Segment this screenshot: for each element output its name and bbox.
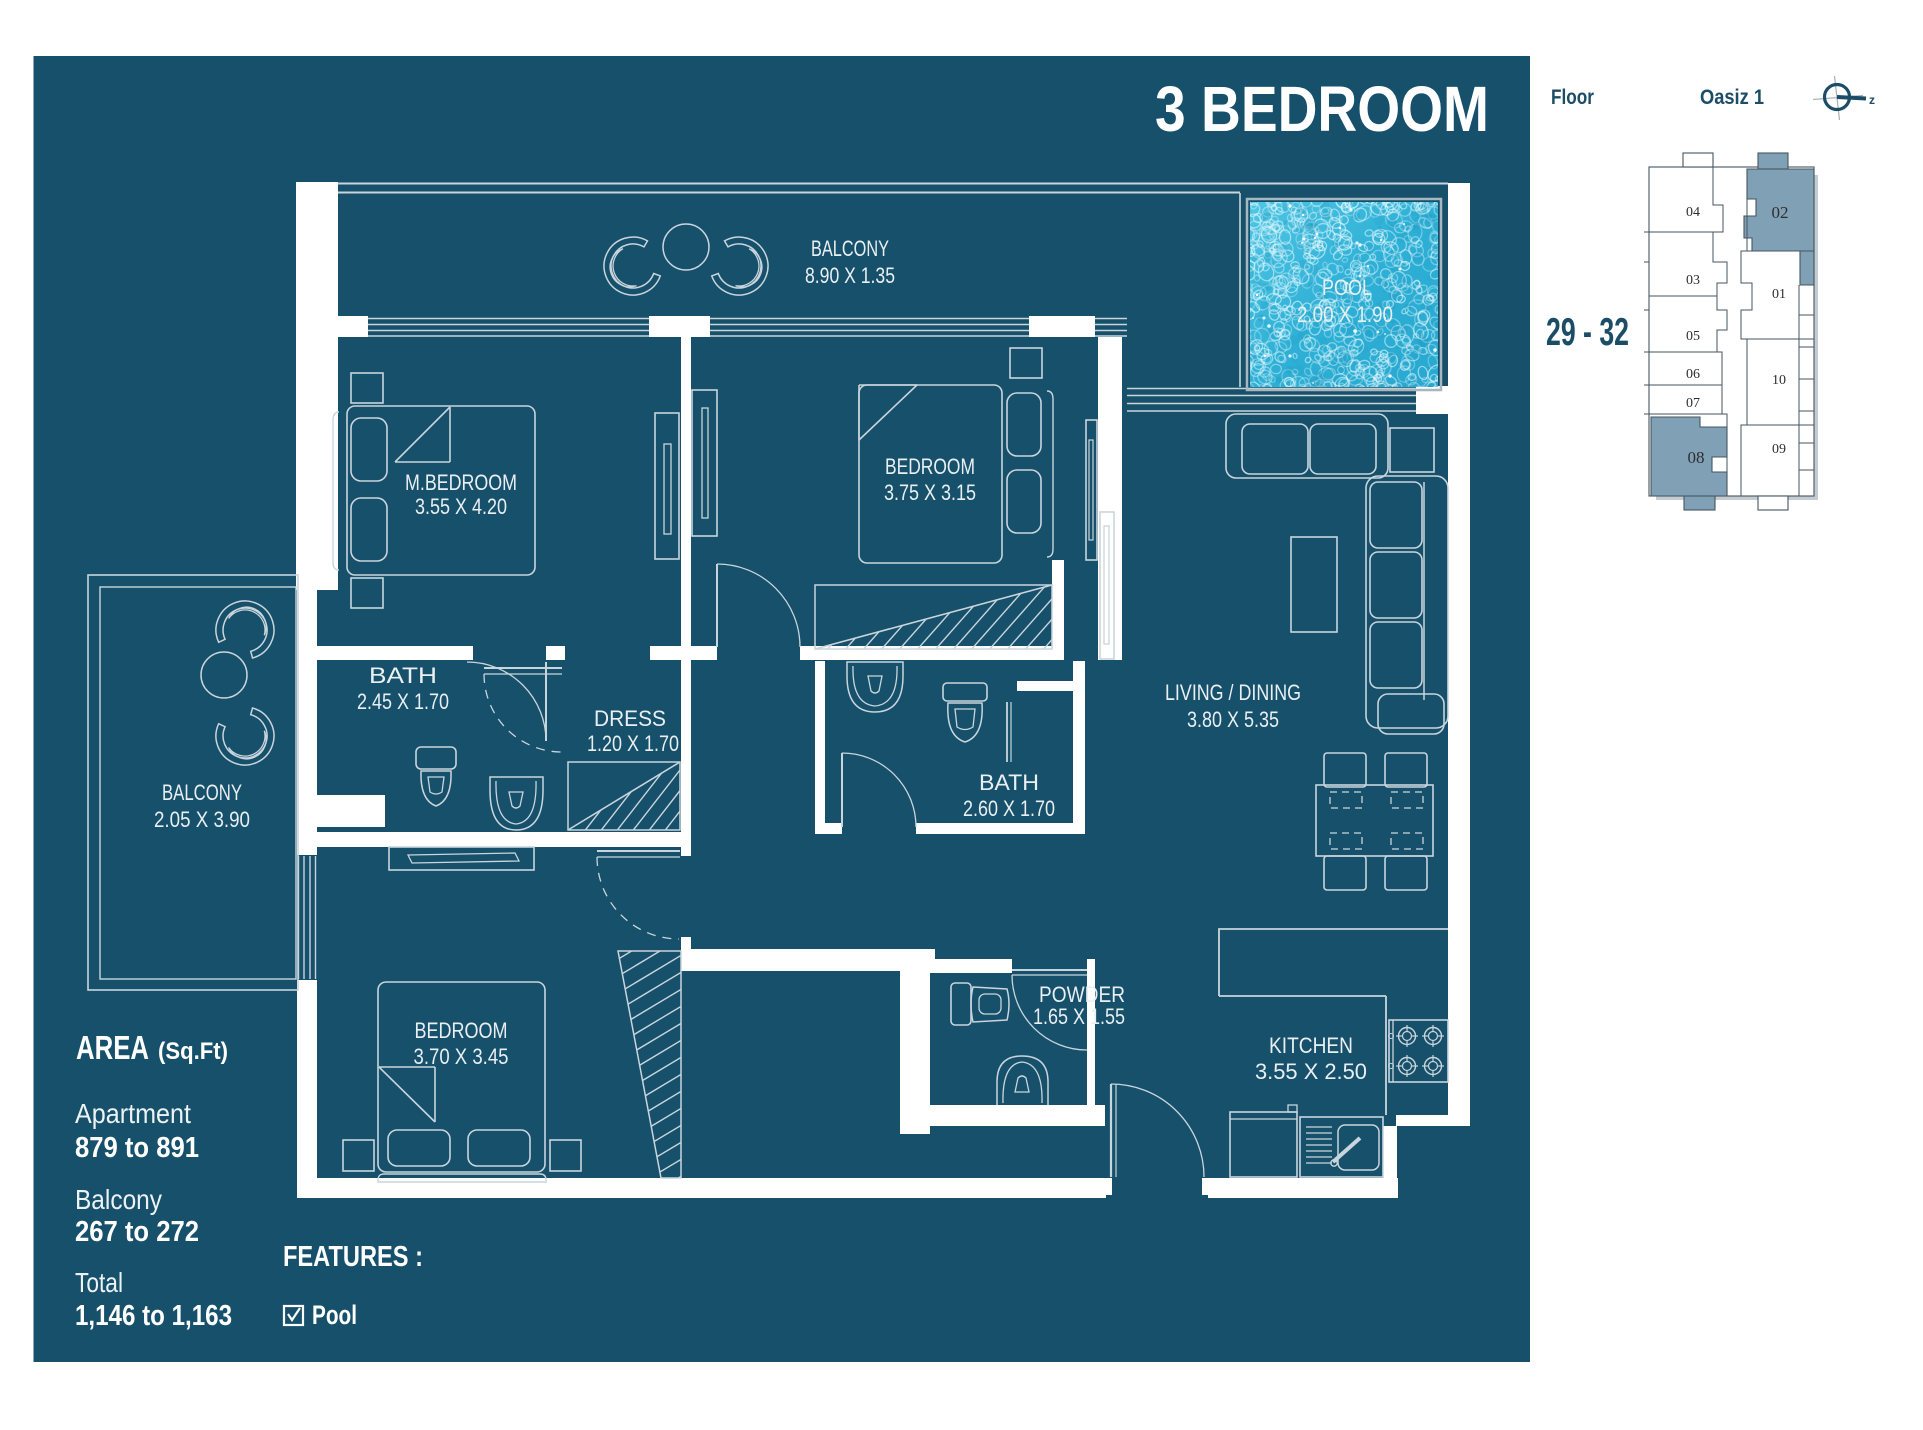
- svg-text:06: 06: [1686, 367, 1700, 382]
- svg-text:3.55 X 2.50: 3.55 X 2.50: [1255, 1059, 1367, 1084]
- svg-text:BEDROOM: BEDROOM: [885, 454, 975, 479]
- svg-text:1.65 X 1.55: 1.65 X 1.55: [1033, 1004, 1125, 1029]
- svg-text:08: 08: [1688, 448, 1705, 467]
- svg-text:Balcony: Balcony: [75, 1184, 162, 1215]
- svg-text:2.45 X 1.70: 2.45 X 1.70: [357, 689, 449, 714]
- svg-text:05: 05: [1686, 329, 1700, 344]
- svg-text:3 BEDROOM: 3 BEDROOM: [1155, 73, 1489, 145]
- svg-text:Total: Total: [75, 1267, 123, 1298]
- svg-text:03: 03: [1686, 273, 1700, 288]
- svg-text:267 to 272: 267 to 272: [75, 1216, 199, 1248]
- svg-text:BATH: BATH: [369, 663, 437, 688]
- svg-text:879 to 891: 879 to 891: [75, 1132, 199, 1164]
- svg-text:3.70 X 3.45: 3.70 X 3.45: [414, 1044, 509, 1069]
- svg-text:2.05 X 3.90: 2.05 X 3.90: [154, 807, 250, 832]
- svg-text:3.55 X 4.20: 3.55 X 4.20: [415, 494, 507, 519]
- svg-text:AREA: AREA: [76, 1029, 149, 1066]
- svg-text:2.00 X 1.90: 2.00 X 1.90: [1297, 302, 1393, 327]
- svg-text:KITCHEN: KITCHEN: [1269, 1033, 1353, 1058]
- svg-text:Pool: Pool: [312, 1300, 357, 1330]
- svg-text:LIVING / DINING: LIVING / DINING: [1165, 680, 1301, 705]
- svg-text:1.20 X 1.70: 1.20 X 1.70: [587, 731, 679, 756]
- svg-text:Floor: Floor: [1551, 86, 1594, 109]
- svg-text:z: z: [1869, 93, 1875, 107]
- svg-text:BEDROOM: BEDROOM: [415, 1018, 508, 1043]
- svg-text:02: 02: [1772, 203, 1789, 222]
- svg-text:3.80 X 5.35: 3.80 X 5.35: [1187, 707, 1279, 732]
- svg-text:1,146 to 1,163: 1,146 to 1,163: [75, 1300, 232, 1332]
- svg-text:BALCONY: BALCONY: [811, 236, 889, 261]
- svg-text:FEATURES :: FEATURES :: [283, 1241, 423, 1273]
- svg-text:BALCONY: BALCONY: [162, 780, 242, 805]
- svg-text:DRESS: DRESS: [594, 706, 666, 731]
- svg-text:Oasiz 1: Oasiz 1: [1700, 86, 1764, 109]
- svg-text:Apartment: Apartment: [75, 1098, 191, 1129]
- svg-text:3.75 X 3.15: 3.75 X 3.15: [884, 480, 976, 505]
- svg-text:09: 09: [1772, 442, 1786, 457]
- svg-text:M.BEDROOM: M.BEDROOM: [405, 470, 517, 495]
- svg-text:8.90 X 1.35: 8.90 X 1.35: [805, 263, 895, 288]
- svg-text:07: 07: [1686, 396, 1700, 411]
- svg-text:10: 10: [1772, 373, 1786, 388]
- svg-text:2.60 X 1.70: 2.60 X 1.70: [963, 796, 1055, 821]
- svg-text:POOL: POOL: [1322, 275, 1372, 300]
- svg-text:29 - 32: 29 - 32: [1546, 311, 1629, 354]
- svg-text:04: 04: [1686, 205, 1700, 220]
- svg-text:(Sq.Ft): (Sq.Ft): [158, 1038, 228, 1065]
- svg-text:BATH: BATH: [979, 770, 1039, 795]
- svg-text:01: 01: [1772, 287, 1786, 302]
